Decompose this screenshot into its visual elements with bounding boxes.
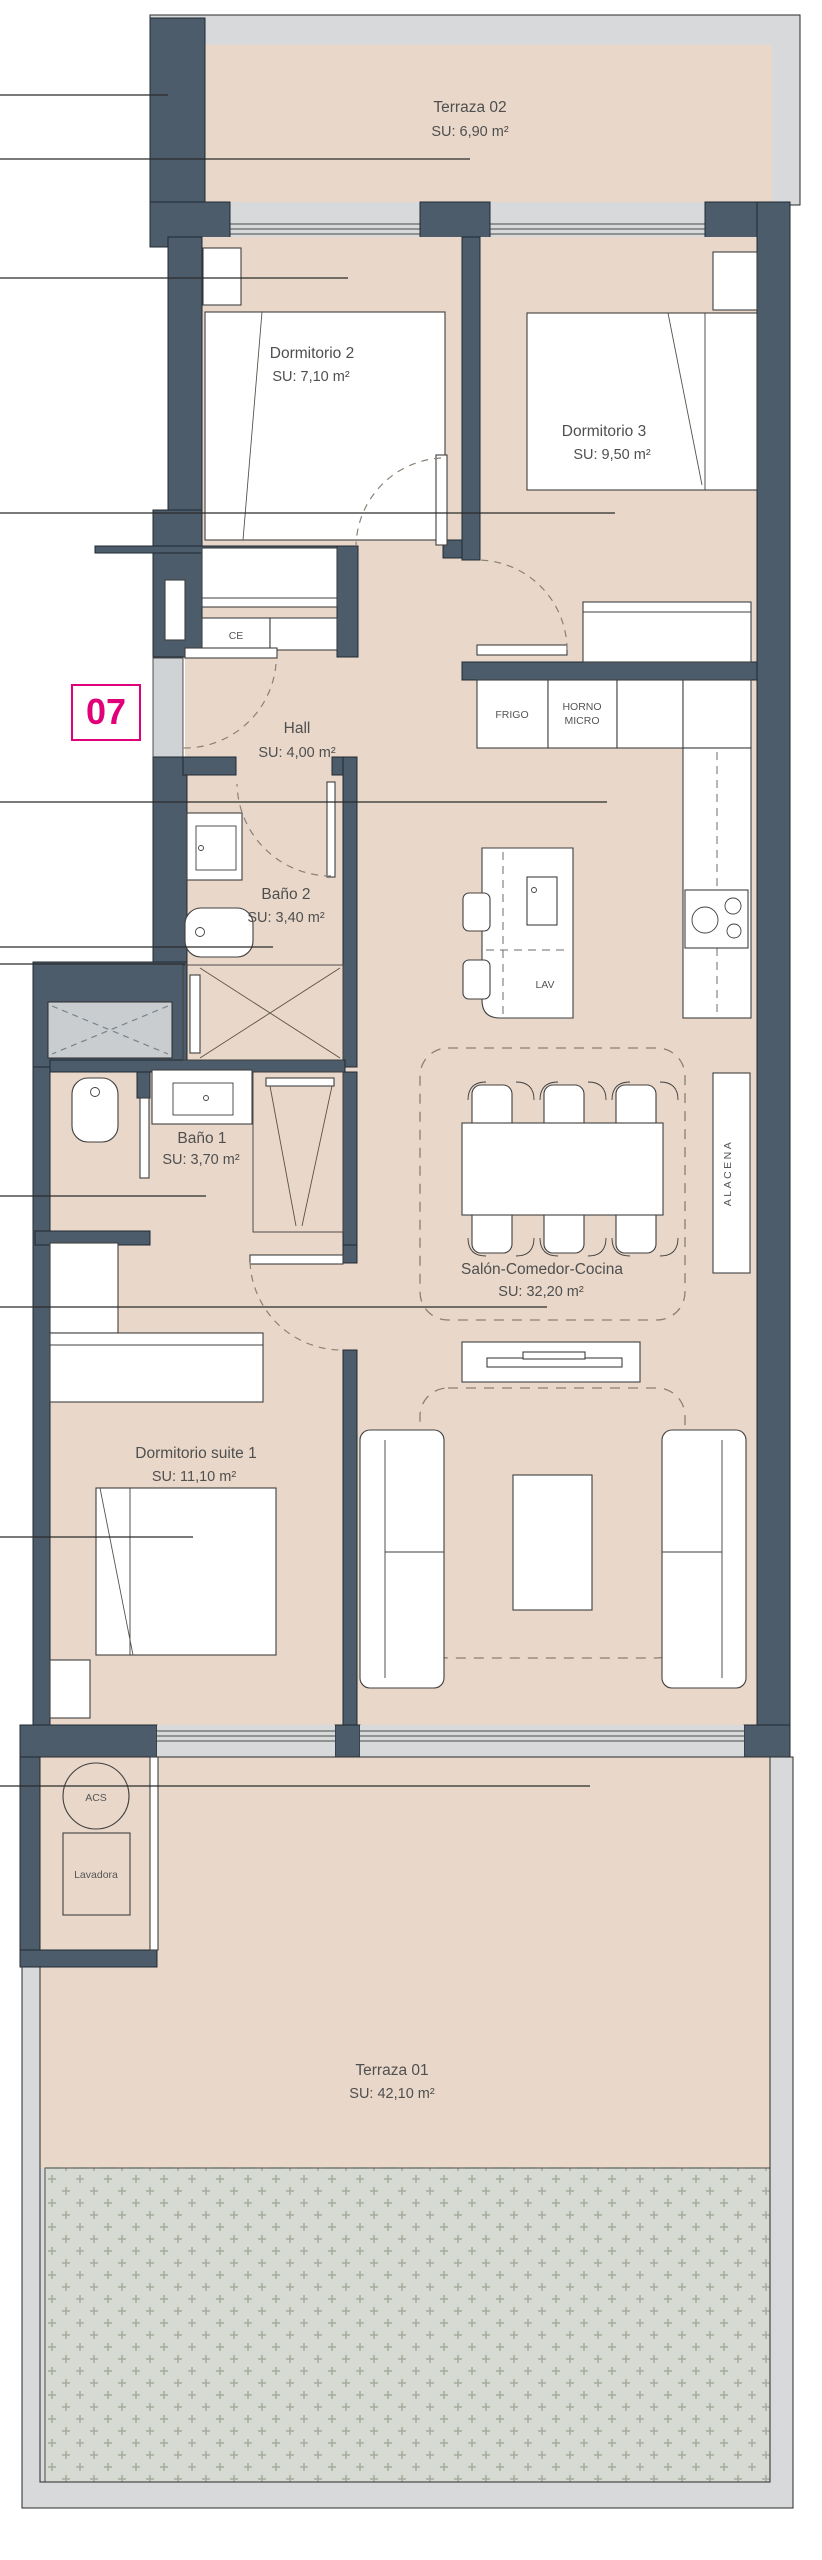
lavadora-label: Lavadora	[74, 1869, 118, 1881]
salon-area: SU: 32,20 m²	[498, 1284, 584, 1300]
dormitorio2-area: SU: 7,10 m²	[272, 369, 350, 385]
suite-name: Dormitorio suite 1	[135, 1445, 256, 1462]
counter-cell	[683, 680, 751, 748]
nightstand	[50, 1660, 90, 1718]
coffee-table	[513, 1475, 592, 1610]
shower-screen	[266, 1078, 334, 1086]
door-leaf	[250, 1255, 343, 1264]
frigo-label: FRIGO	[495, 709, 528, 721]
nightstand	[203, 248, 241, 305]
tv-base	[523, 1352, 585, 1359]
terraza02-area: SU: 6,90 m²	[431, 124, 509, 140]
dormitorio2-name: Dormitorio 2	[270, 345, 354, 362]
wardrobe	[583, 602, 751, 662]
terraza02-name: Terraza 02	[433, 99, 506, 116]
sofa-right	[662, 1430, 746, 1688]
acs-label: ACS	[85, 1792, 107, 1804]
door-leaf	[477, 645, 567, 655]
counter-cell	[617, 680, 683, 748]
entry-threshold	[153, 658, 183, 757]
shower-screen	[190, 975, 200, 1053]
suite-area: SU: 11,10 m²	[152, 1469, 237, 1485]
terraza01-name: Terraza 01	[355, 2062, 428, 2079]
island	[482, 848, 573, 1018]
horno-label: HORNO	[562, 701, 601, 713]
lav-label: LAV	[535, 979, 554, 991]
salon-name: Salón-Comedor-Cocina	[461, 1261, 623, 1278]
floorplan-unit-07: 07 Terraza 02 SU: 6,90 m² Dormitorio 2 S…	[0, 0, 822, 2560]
oven-micro	[548, 680, 617, 748]
wall	[20, 1757, 40, 1967]
terraza01-area: SU: 42,10 m²	[349, 2086, 435, 2102]
wall	[20, 1950, 157, 1967]
stool	[463, 893, 490, 931]
door-leaf	[436, 455, 447, 545]
washbasin	[152, 1070, 252, 1124]
bed	[96, 1488, 276, 1655]
dormitorio3-area: SU: 9,50 m²	[573, 447, 651, 463]
wall	[150, 18, 205, 205]
wardrobe	[50, 1333, 263, 1402]
entry-door-leaf	[185, 648, 277, 658]
closet	[50, 1243, 118, 1333]
bano2-area: SU: 3,40 m²	[247, 910, 325, 926]
nightstand	[713, 252, 757, 310]
terraza-01	[20, 1757, 793, 2508]
bano2-name: Baño 2	[261, 886, 310, 903]
closet-cell	[270, 618, 337, 650]
unit-badge: 07	[72, 685, 140, 740]
bano1-area: SU: 3,70 m²	[162, 1152, 240, 1168]
hall-name: Hall	[284, 720, 311, 737]
ce-label: CE	[229, 630, 244, 642]
unit-number: 07	[86, 691, 126, 732]
cooktop	[685, 890, 748, 948]
wall-niche	[165, 580, 185, 640]
alacena-label: ALACENA	[722, 1140, 734, 1207]
micro-label: MICRO	[565, 715, 600, 727]
gravel-area	[45, 2168, 770, 2482]
island-sink	[527, 877, 557, 925]
rear-window-band	[157, 1725, 744, 1757]
sofa-left	[360, 1430, 444, 1688]
bano1-name: Baño 1	[177, 1130, 226, 1147]
duct-shaft	[48, 1002, 172, 1058]
door-leaf	[140, 1098, 149, 1178]
dining-table	[462, 1123, 663, 1215]
door-leaf	[327, 782, 335, 877]
dormitorio3-name: Dormitorio 3	[562, 423, 646, 440]
stool	[463, 960, 490, 999]
hall-area: SU: 4,00 m²	[258, 745, 336, 761]
bed	[527, 313, 757, 490]
